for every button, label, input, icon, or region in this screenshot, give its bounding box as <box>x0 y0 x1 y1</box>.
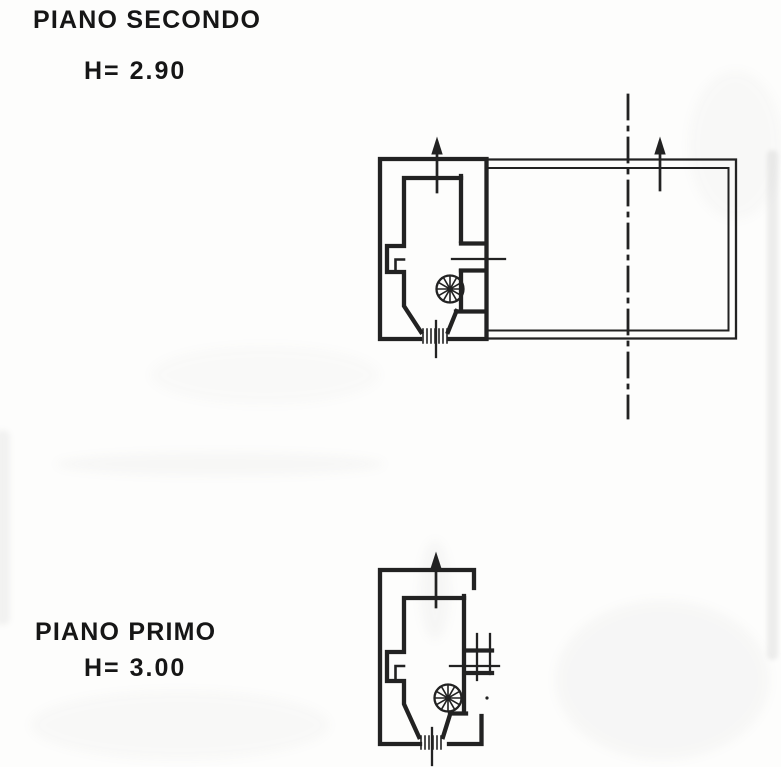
scanned-floor-plan-page: PIANO SECONDO H= 2.90 PIANO PRIMO H= 3.0… <box>0 0 781 767</box>
second-floor-plan <box>380 95 736 418</box>
duct-connector-walls <box>461 244 485 271</box>
terrace-outer-wall <box>487 160 736 339</box>
room-bottom-closure-wall <box>443 713 466 737</box>
arrow-head <box>654 137 665 155</box>
spiral-staircase-icon <box>437 276 464 303</box>
spiral-staircase-center <box>446 696 450 700</box>
window-bay-walls <box>466 651 492 674</box>
floor-plans-drawing <box>0 0 781 767</box>
reference-dot <box>485 696 488 699</box>
spiral-staircase-center <box>448 287 452 291</box>
window-bay-icon <box>450 634 499 680</box>
first-floor-plan <box>380 552 499 766</box>
stairroom-inner-wall <box>387 178 461 332</box>
arrow-head <box>431 137 442 155</box>
terrace-inner-wall <box>487 168 729 331</box>
up-arrow-stairwell-icon <box>431 137 442 193</box>
arrow-head <box>431 552 442 569</box>
spiral-staircase-icon <box>435 685 462 712</box>
up-arrow-terrace-icon <box>654 137 665 191</box>
inner-wall <box>387 598 464 737</box>
niche-step <box>396 666 405 681</box>
room-bottom-closure-wall <box>448 311 485 332</box>
